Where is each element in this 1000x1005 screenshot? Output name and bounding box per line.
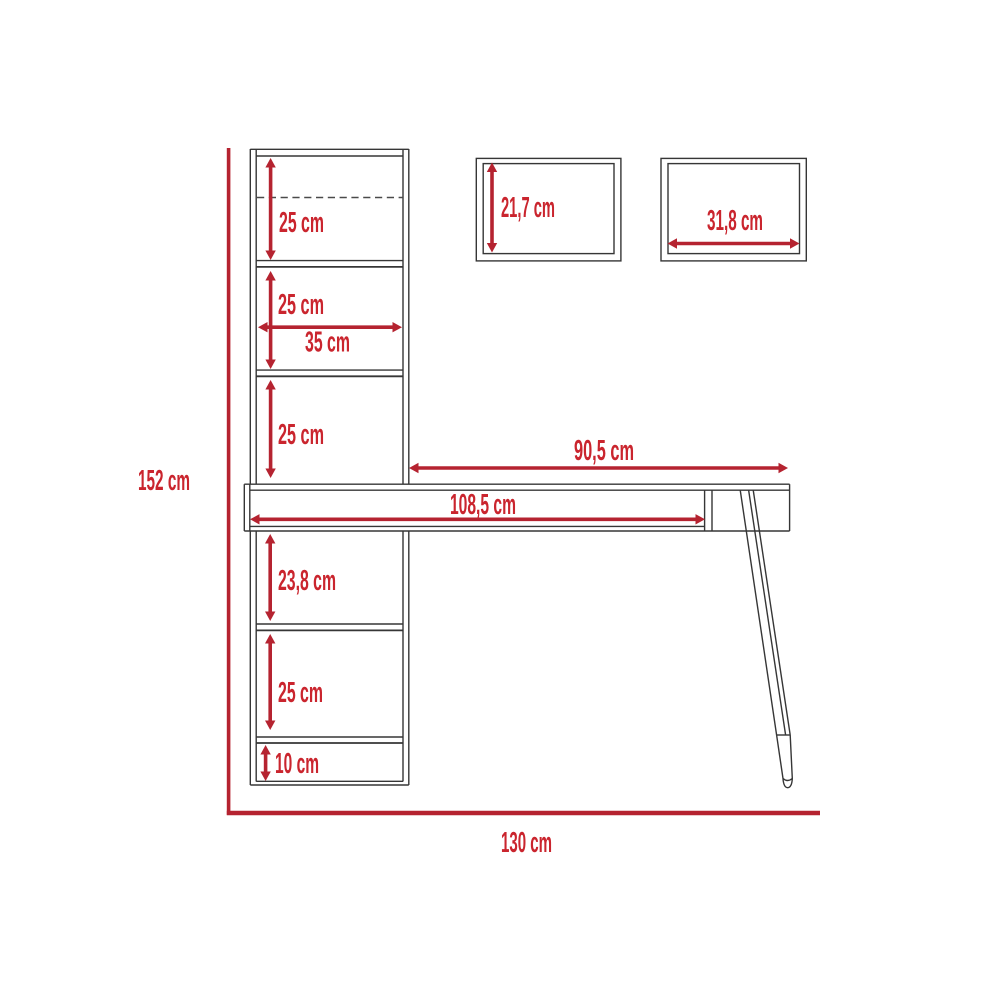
svg-text:25 cm: 25 cm [279, 207, 324, 239]
svg-text:21,7 cm: 21,7 cm [501, 192, 555, 224]
svg-text:10 cm: 10 cm [275, 748, 319, 780]
svg-text:152 cm: 152 cm [138, 465, 190, 497]
svg-text:90,5 cm: 90,5 cm [574, 435, 634, 467]
svg-text:108,5 cm: 108,5 cm [450, 489, 516, 521]
svg-text:31,8 cm: 31,8 cm [707, 205, 763, 237]
svg-text:23,8 cm: 23,8 cm [278, 565, 336, 597]
svg-text:25 cm: 25 cm [278, 419, 324, 451]
svg-text:25 cm: 25 cm [278, 677, 323, 709]
svg-text:35 cm: 35 cm [305, 327, 350, 359]
svg-text:130 cm: 130 cm [501, 827, 552, 859]
svg-text:25 cm: 25 cm [278, 289, 324, 321]
